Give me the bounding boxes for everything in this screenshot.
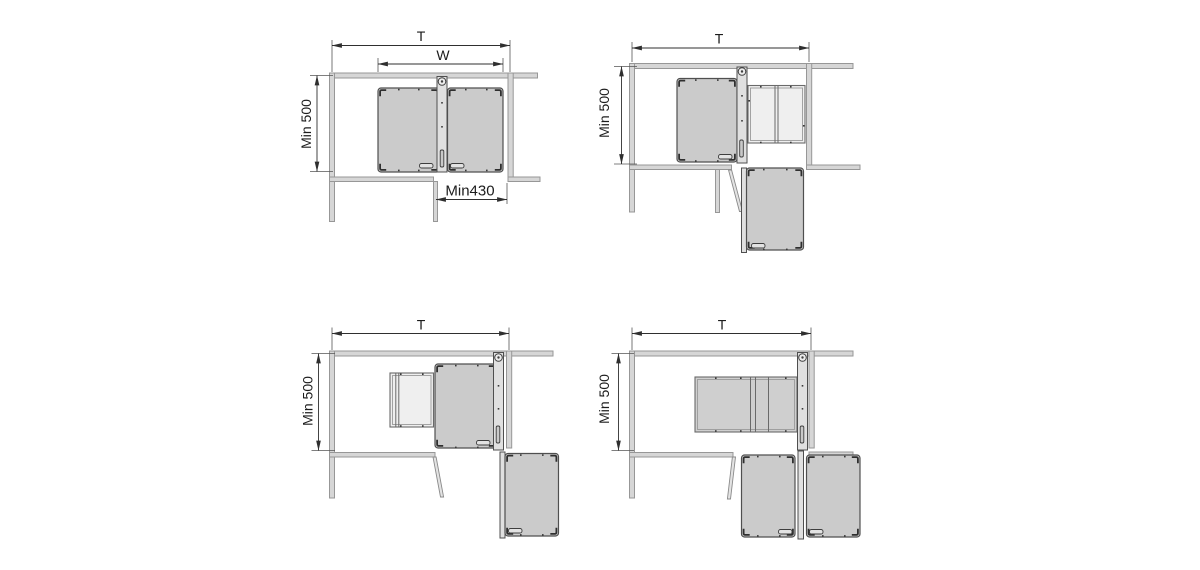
wall-left [330, 351, 335, 498]
wall-left [330, 73, 335, 222]
tray-main [435, 364, 497, 448]
dim-label-T: T [718, 317, 727, 333]
tray-frame-open [390, 373, 434, 427]
arm-strip [742, 168, 747, 253]
tray-handle [719, 155, 733, 160]
diagram-unit-rotated-one-extended: T Min 500 [300, 317, 559, 539]
dim-label-min500: Min 500 [298, 99, 314, 149]
dim-label-T: T [417, 317, 426, 333]
dimension-total-width: T [332, 28, 510, 72]
dimension-unit-width: W [378, 47, 503, 72]
pivot-rail [737, 67, 747, 163]
wall-left [630, 64, 635, 213]
dimension-total-width: T [632, 317, 811, 351]
tray-extended-left [742, 451, 804, 539]
dim-label-min500: Min 500 [596, 88, 612, 138]
tray-extended-right [807, 455, 861, 537]
dim-label-T: T [417, 28, 426, 44]
wall-right [807, 64, 812, 167]
tray-handle [752, 244, 766, 249]
dimension-min-depth: Min 500 [596, 354, 634, 451]
wall-stub [434, 182, 438, 222]
tray-handle [810, 530, 824, 535]
diagram-one-tray-swung-one-extended: T Min 500 [596, 31, 860, 253]
diagram-canvas: T W Min 500 Min430 [0, 0, 1200, 570]
wall-right [809, 351, 814, 448]
corner-pullout-installation-diagram: T W Min 500 Min430 [0, 0, 1200, 570]
pivot-rail [494, 353, 504, 451]
arm-strip [500, 452, 505, 538]
diagram-both-trays-inside: T W Min 500 Min430 [298, 28, 540, 222]
tray-left [677, 79, 737, 163]
tray-handle [509, 529, 523, 534]
door-panel [727, 457, 735, 499]
wall-top [330, 351, 554, 356]
wall-right [507, 351, 512, 448]
wall-left [630, 351, 635, 498]
dim-label-min500: Min 500 [300, 376, 316, 426]
wall-top [630, 351, 854, 356]
wall-right [508, 73, 513, 178]
arm-strip [798, 451, 804, 539]
wall-return [508, 177, 540, 182]
tray-frame-open [748, 86, 805, 144]
dim-label-min430: Min430 [445, 183, 494, 200]
dim-label-W: W [436, 47, 450, 63]
door-panel [433, 457, 444, 497]
dimension-min-depth: Min 500 [298, 76, 333, 172]
wall-bottom [330, 177, 434, 182]
diagram-unit-rotated-two-extended: T Min 500 [596, 317, 860, 540]
tray-frame-open [695, 377, 797, 432]
tray-left [378, 88, 440, 172]
door-panel [729, 170, 743, 212]
pivot-rail [437, 77, 447, 173]
dimension-min-opening: Min430 [436, 183, 507, 205]
dim-label-T: T [715, 31, 724, 47]
dimension-total-width: T [332, 317, 509, 351]
wall-stub [716, 170, 720, 213]
tray-extended [500, 452, 559, 538]
tray-handle [451, 164, 465, 169]
dimension-total-width: T [632, 31, 809, 63]
dim-label-min500: Min 500 [596, 374, 612, 424]
tray-handle [477, 441, 491, 446]
wall-return [807, 165, 861, 170]
wall-bottom [330, 453, 436, 458]
pivot-rail [798, 353, 808, 451]
tray-handle [420, 164, 434, 169]
tray-extended [742, 168, 804, 253]
tray-right [448, 88, 504, 172]
tray-handle [779, 530, 793, 535]
wall-top [330, 73, 538, 78]
wall-bottom [630, 165, 732, 170]
wall-bottom [630, 453, 734, 458]
